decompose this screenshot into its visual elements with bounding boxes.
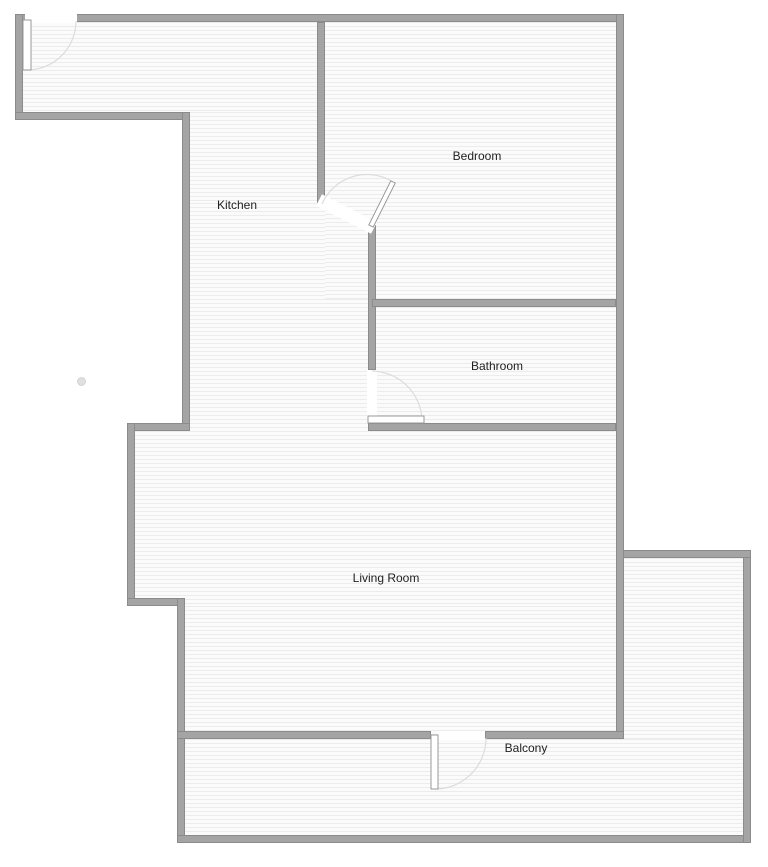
wall-living-topleft: [127, 423, 190, 431]
wall-bottom-outer: [177, 835, 751, 843]
wall-kitchen-left: [182, 112, 190, 431]
floor-balcony-bottom: [185, 739, 743, 835]
room-label-bedroom: Bedroom: [453, 149, 502, 163]
wall-balcony-divider-right: [485, 731, 624, 739]
floor-top-strip: [23, 22, 317, 112]
wall-bathroom-bottom: [368, 423, 616, 431]
wall-living-left-lower: [177, 598, 185, 843]
wall-right-main: [616, 14, 624, 738]
wall-right-outer-lower: [743, 550, 751, 843]
wall-left-outer-upper: [15, 14, 23, 120]
room-label-living-room: Living Room: [353, 571, 420, 585]
wall-kitchen-bedroom-upper: [317, 22, 325, 203]
room-label-kitchen: Kitchen: [217, 198, 257, 212]
wall-bedroom-bathroom: [372, 299, 616, 307]
floor-plan: Kitchen Bedroom Bathroom Living Room Bal…: [0, 0, 768, 867]
wall-balcony-divider-left: [177, 731, 431, 739]
wall-balcony-top-right: [616, 550, 751, 558]
marker-dot: [77, 377, 86, 386]
wall-living-left-upper: [127, 423, 135, 606]
room-label-balcony: Balcony: [505, 741, 548, 755]
floor-living-lower: [185, 606, 616, 739]
room-label-bathroom: Bathroom: [471, 359, 523, 373]
wall-notch-horizontal: [15, 112, 190, 120]
wall-top-outer: [15, 14, 624, 22]
wall-kitchen-bathroom: [368, 225, 376, 370]
